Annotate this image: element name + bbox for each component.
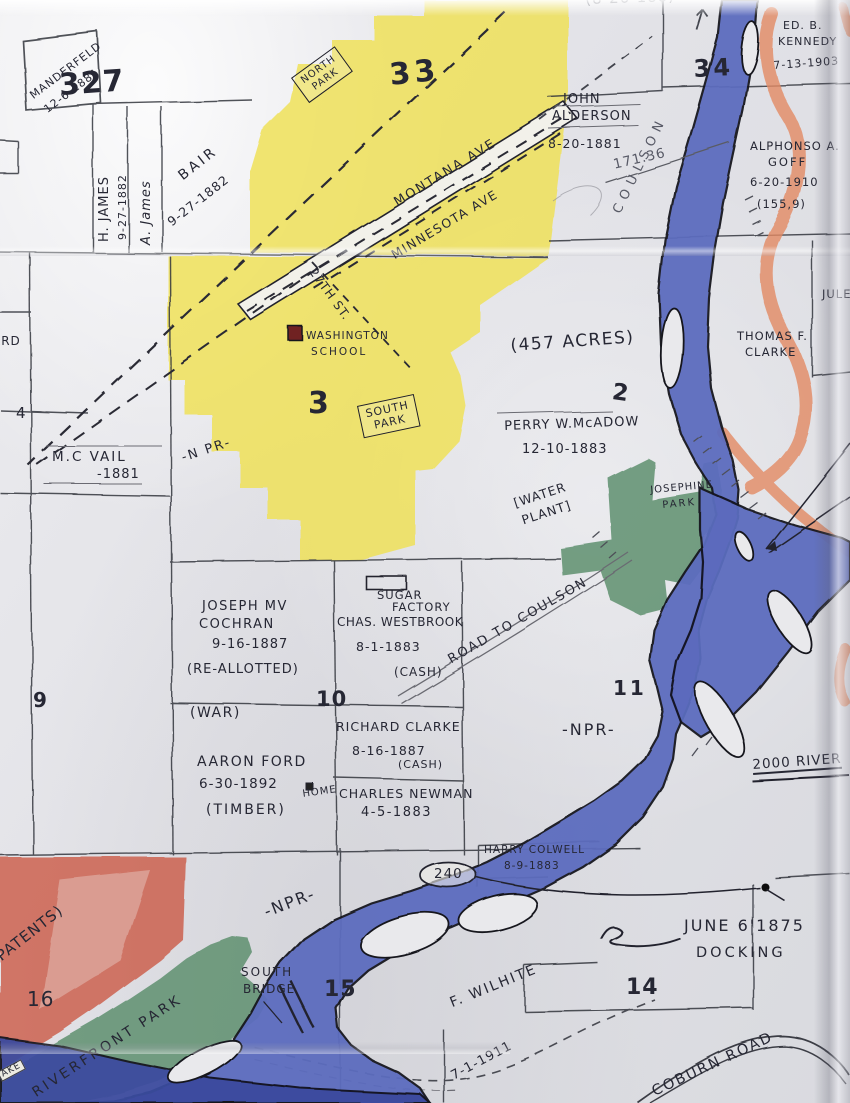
owner-alderson-name2: ALDERSON <box>552 110 632 124</box>
owner-vail-date: -1881 <box>97 468 140 482</box>
section-10: 10 <box>316 688 347 710</box>
section-33: 33 <box>388 55 441 92</box>
owner-thomas-clarke-name2: CLARKE <box>745 346 796 358</box>
owner-ford-date: 6-30-1892 <box>199 777 278 791</box>
washington-school-marker <box>288 326 302 340</box>
owner-cochran-name2: COCHRAN <box>199 618 275 632</box>
washington-school-label-2: SCHOOL <box>311 347 367 358</box>
docking-note-2: DOCKING <box>696 946 786 961</box>
map-drawing <box>0 0 850 1103</box>
owner-richard-clarke-date: 8-16-1887 <box>352 744 426 757</box>
owner-hjames-name: H. JAMES <box>98 176 112 242</box>
section-11: 11 <box>613 678 647 699</box>
war-note: (WAR) <box>190 706 241 721</box>
owner-alderson-date: 8-20-1881 <box>548 137 622 150</box>
pencil-scuff <box>552 186 601 215</box>
section-2: 2 <box>611 380 631 406</box>
owner-cochran-date: 9-16-1887 <box>212 638 288 652</box>
owner-westbrook-date: 8-1-1883 <box>356 640 421 653</box>
paper-crease-mid <box>0 246 850 256</box>
owner-thomas-clarke-name1: THOMAS F. <box>737 330 808 342</box>
section-3: 3 <box>308 388 330 420</box>
owner-ajames-name: A. James <box>140 180 154 245</box>
road-to-coulson-south-2 <box>402 560 632 704</box>
owner-cochran-name1: JOSEPH MV <box>202 600 288 614</box>
owner-ford-note: (TIMBER) <box>206 803 286 818</box>
owner-westbrook-name: CHAS. WESTBROOK <box>337 616 463 629</box>
section-4: 4 <box>16 406 27 422</box>
owner-newman-date: 4-5-1883 <box>361 806 432 820</box>
lot-240-label: 240 <box>434 867 463 881</box>
paper-fold-right <box>814 0 850 1103</box>
owner-ford-name: AARON FORD <box>197 755 307 770</box>
owner-colwell-name: HARRY COLWELL <box>484 845 585 856</box>
paper-crease-low <box>0 1042 510 1054</box>
owner-richard-clarke-name: RICHARD CLARKE <box>336 720 461 733</box>
docking-squiggle <box>600 926 680 945</box>
paper-crease-top <box>0 0 850 16</box>
plat-map: MANDERFELD 12-6-1881 327 H. JAMES 9-27-1… <box>0 0 850 1103</box>
section-15: 15 <box>324 978 357 1001</box>
owner-goff-name2: GOFF <box>768 156 807 168</box>
owner-mcadow-date: 12-10-1883 <box>522 443 608 457</box>
left-edge-ard: ARD <box>0 335 21 348</box>
npr-label-mid: -NPR- <box>562 722 616 739</box>
sugar-factory-label-2: FACTORY <box>392 601 451 613</box>
section-14: 14 <box>626 976 659 999</box>
washington-school-label-1: WASHINGTON <box>306 331 389 342</box>
owner-vail-name: M.C VAIL <box>52 450 127 464</box>
section-16: 16 <box>27 989 54 1010</box>
section-32: 327 <box>58 65 126 101</box>
section-34: 34 <box>693 55 734 82</box>
south-bridge-label-2: BRIDGE <box>243 983 295 996</box>
owner-goff-acres: (155,9) <box>757 198 806 210</box>
south-bridge-label-1: SOUTH <box>241 966 293 979</box>
owner-newman-name: CHARLES NEWMAN <box>339 787 473 800</box>
owner-hjames-date: 9-27-1882 <box>117 174 129 240</box>
owner-colwell-date: 8-9-1883 <box>504 861 560 872</box>
owner-cochran-note: (RE-ALLOTTED) <box>187 663 299 677</box>
docking-note-1: JUNE 6'1875 <box>684 918 805 935</box>
owner-alderson-name1: JOHN <box>563 93 601 107</box>
owner-goff-date: 6-20-1910 <box>750 176 819 188</box>
owner-westbrook-note: (CASH) <box>394 666 443 679</box>
section-9: 9 <box>33 690 48 711</box>
owner-richard-clarke-note: (CASH) <box>398 759 443 771</box>
